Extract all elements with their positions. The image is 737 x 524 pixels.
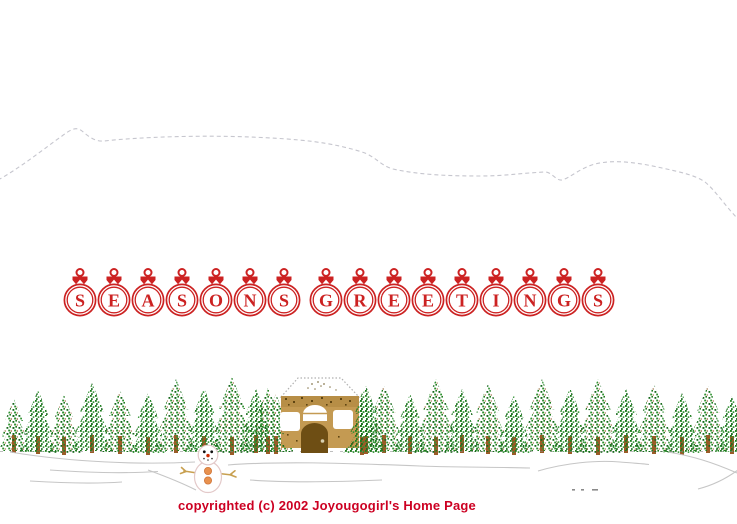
ornament-loop [247, 269, 254, 276]
ornament-letter: E [411, 267, 445, 319]
evergreen-tree [101, 390, 139, 454]
ornament-loop [213, 269, 220, 276]
ornament-letter: S [267, 267, 301, 319]
ornament-loop [391, 269, 398, 276]
snowman-button-bottom [204, 477, 211, 484]
ornament-letter: S [63, 267, 97, 319]
copyright-text: copyrighted (c) 2002 Joyougogirl's Home … [178, 498, 476, 513]
ornament-letter-glyph: I [492, 290, 499, 310]
ornament-cap [209, 277, 224, 285]
ornament-letter: G [547, 267, 581, 319]
snow-drifts [10, 452, 737, 490]
ornament-letter: N [233, 267, 267, 319]
ornament-letter: N [513, 267, 547, 319]
ornament-letter-glyph: S [75, 290, 85, 310]
ornament-cap [277, 277, 292, 285]
snowman-left-eye [203, 450, 206, 453]
ornament-letter-glyph: E [422, 290, 434, 310]
ornament-loop [77, 269, 84, 276]
greeting-word: S E A S O [63, 267, 301, 319]
ornament-cap [353, 277, 368, 285]
ornament-letter-glyph: S [593, 290, 603, 310]
ornament-letter-glyph: S [177, 290, 187, 310]
ornament-letter: S [581, 267, 615, 319]
ornament-letter: O [199, 267, 233, 319]
ornament-letter-glyph: E [108, 290, 120, 310]
cabin-left-window [280, 412, 300, 431]
ornament-letter: I [479, 267, 513, 319]
ornament-letter: E [97, 267, 131, 319]
ornament-letter-glyph: E [388, 290, 400, 310]
ornament-cap [387, 277, 402, 285]
ornament-loop [459, 269, 466, 276]
ornament-cap [557, 277, 572, 285]
ornament-cap [591, 277, 606, 285]
ornament-cap [489, 277, 504, 285]
ornament-letter: E [377, 267, 411, 319]
cabin-roof [281, 378, 359, 397]
ornament-loop [425, 269, 432, 276]
ornament-letter-glyph: N [524, 290, 537, 310]
ornament-letter-glyph: G [557, 290, 571, 310]
ornament-loop [145, 269, 152, 276]
winter-scene [0, 0, 737, 524]
ornament-cap [319, 277, 334, 285]
ornament-cap [523, 277, 538, 285]
snow-cabin [280, 378, 359, 453]
ornament-loop [111, 269, 118, 276]
mountain-outline [0, 129, 737, 220]
ornament-letter: R [343, 267, 377, 319]
ornament-cap [421, 277, 436, 285]
ornament-letter-glyph: R [354, 290, 368, 310]
ornament-letter-glyph: N [244, 290, 257, 310]
ornament-letter-glyph: T [456, 290, 468, 310]
snowman-nose [206, 454, 209, 457]
cabin-right-window [333, 410, 353, 429]
ornament-letter-glyph: A [142, 290, 155, 310]
ornament-letter-glyph: S [279, 290, 289, 310]
ground-marks [572, 489, 598, 491]
ornament-loop [595, 269, 602, 276]
ornament-letter-glyph: G [319, 290, 333, 310]
ornament-cap [107, 277, 122, 285]
ornament-letter-glyph: O [209, 290, 223, 310]
snowman-button-top [204, 467, 211, 474]
ornament-cap [73, 277, 88, 285]
cabin-door-knob [321, 439, 325, 443]
ornament-cap [455, 277, 470, 285]
ornament-loop [281, 269, 288, 276]
snowman-right-eye [210, 450, 213, 453]
ornament-loop [561, 269, 568, 276]
ornament-letter: S [165, 267, 199, 319]
ornament-loop [357, 269, 364, 276]
ornament-cap [175, 277, 190, 285]
greeting-card-page: S E A S O [0, 0, 737, 524]
ornament-letter: G [309, 267, 343, 319]
ornament-letter: A [131, 267, 165, 319]
greeting-word: G R E E T [309, 267, 615, 319]
ornament-loop [527, 269, 534, 276]
ornament-loop [179, 269, 186, 276]
cabin-door [301, 423, 328, 453]
cabin-garland-band [281, 396, 359, 407]
ornament-loop [493, 269, 500, 276]
seasons-greetings-banner: S E A S O [63, 267, 615, 319]
ornament-loop [323, 269, 330, 276]
ornament-cap [243, 277, 258, 285]
ornament-cap [141, 277, 156, 285]
ornament-letter: T [445, 267, 479, 319]
